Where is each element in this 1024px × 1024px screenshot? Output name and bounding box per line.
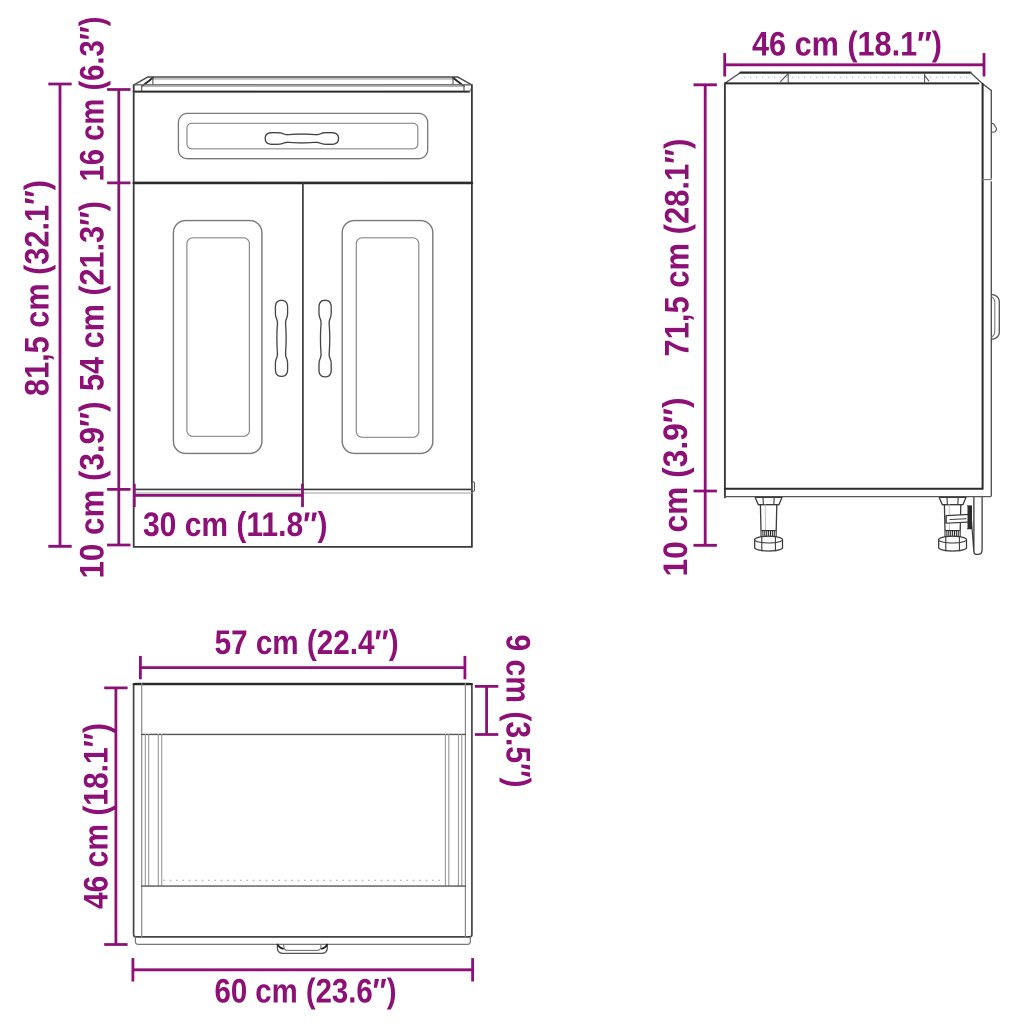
svg-text:46 cm (18.1″): 46 cm (18.1″) — [78, 723, 116, 909]
svg-text:10 cm (3.9″): 10 cm (3.9″) — [74, 402, 112, 579]
svg-text:9 cm (3.5″): 9 cm (3.5″) — [499, 635, 537, 788]
svg-text:60 cm (23.6″): 60 cm (23.6″) — [215, 973, 397, 1011]
svg-text:16 cm (6.3″): 16 cm (6.3″) — [74, 17, 112, 182]
svg-text:10 cm (3.9″): 10 cm (3.9″) — [657, 398, 695, 577]
svg-text:81,5 cm (32.1″): 81,5 cm (32.1″) — [19, 180, 57, 396]
svg-text:46 cm (18.1″): 46 cm (18.1″) — [752, 26, 942, 64]
svg-text:54 cm (21.3″): 54 cm (21.3″) — [74, 201, 112, 391]
svg-text:71,5 cm (28.1″): 71,5 cm (28.1″) — [659, 139, 697, 357]
svg-text:30 cm (11.8″): 30 cm (11.8″) — [143, 506, 328, 544]
svg-text:57 cm (22.4″): 57 cm (22.4″) — [215, 624, 399, 662]
